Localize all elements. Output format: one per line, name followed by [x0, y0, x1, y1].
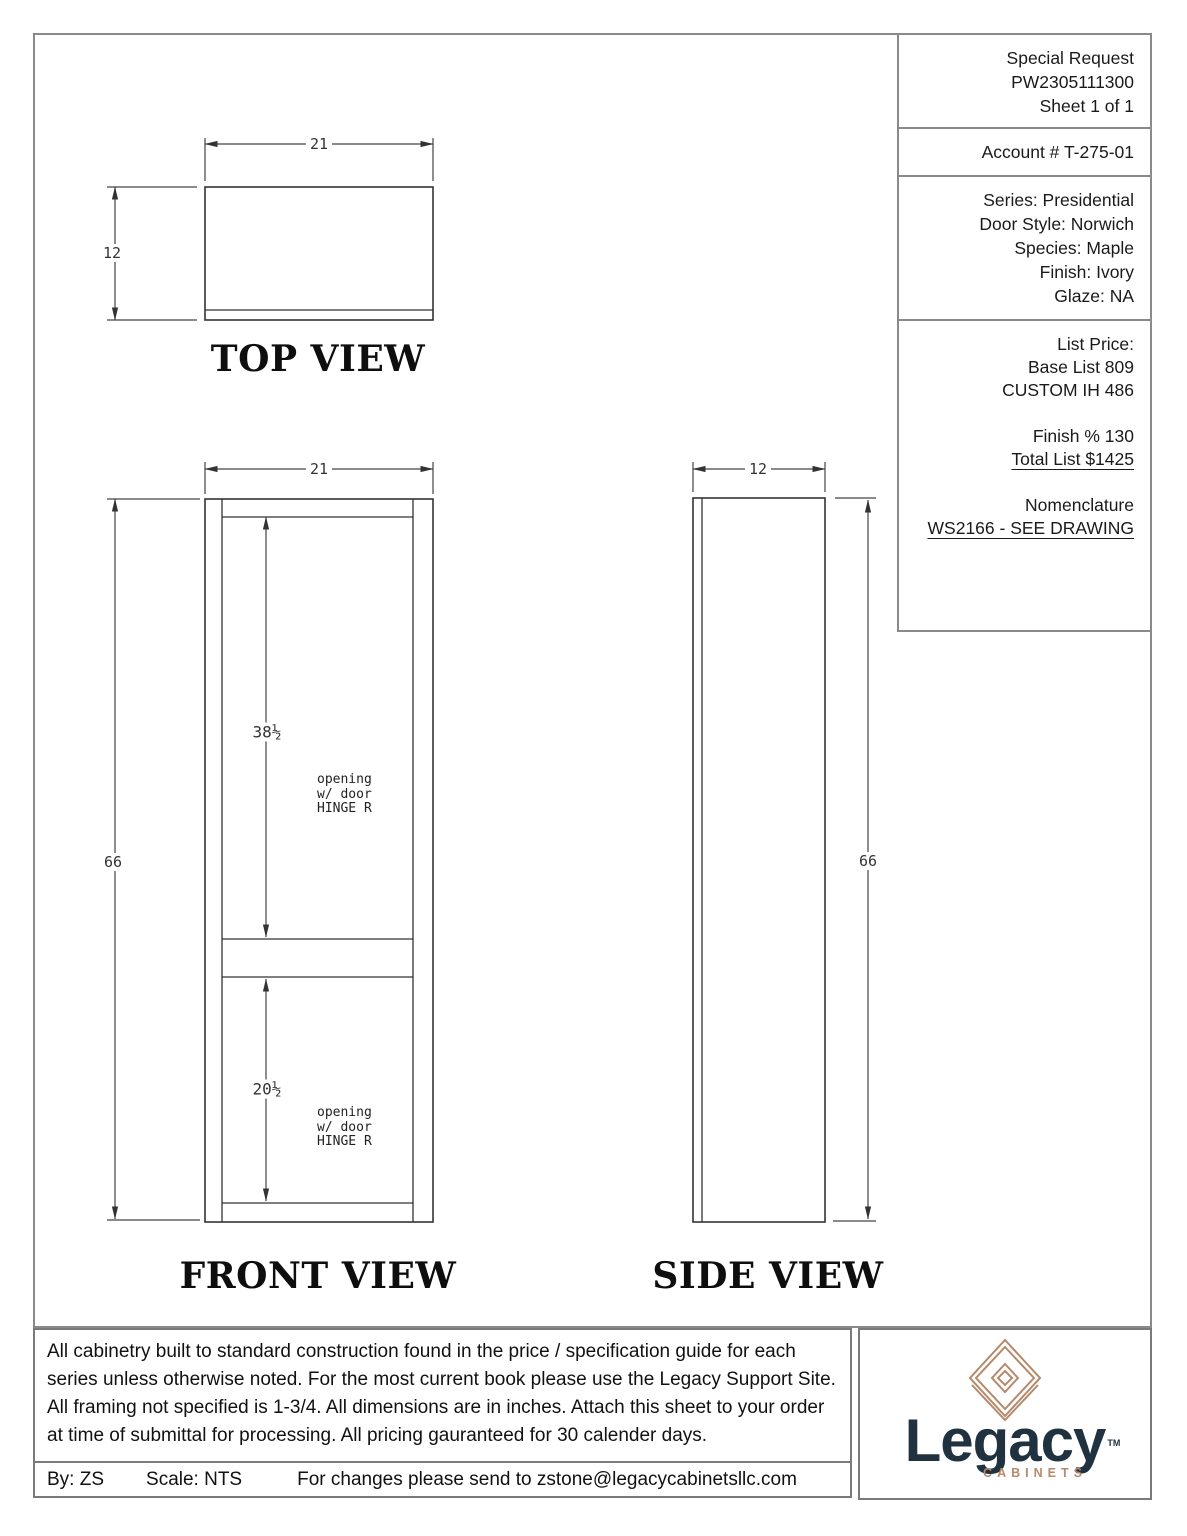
upper-opening-note: opening w/ door HINGE R: [317, 773, 372, 817]
species-value: Species: Maple: [899, 236, 1134, 260]
order-number: PW2305111300: [899, 70, 1134, 94]
upper-opening-note-line3: HINGE R: [317, 802, 372, 817]
legacy-logo-box: LegacyTM CABINETS: [858, 1328, 1152, 1500]
top-view-dimension-lines: [107, 138, 433, 320]
footer-changes-email: For changes please send to zstone@legacy…: [297, 1469, 797, 1491]
dim-label-front-height: 66: [100, 853, 126, 871]
account-number: Account # T-275-01: [982, 142, 1134, 162]
side-view-dimension-lines: [693, 462, 876, 1221]
dim-label-upper-opening: 38½: [249, 723, 286, 742]
base-list-value: Base List 809: [899, 356, 1134, 379]
nomenclature-label: Nomenclature: [899, 494, 1134, 517]
front-view-title: FRONT VIEW: [180, 1255, 457, 1297]
lower-opening-note: opening w/ door HINGE R: [317, 1106, 372, 1150]
sheet-count: Sheet 1 of 1: [899, 94, 1134, 118]
footer-notes-box: All cabinetry built to standard construc…: [33, 1328, 852, 1498]
finish-pct-value: Finish % 130: [899, 425, 1134, 448]
lower-opening-note-line1: opening: [317, 1106, 372, 1121]
top-view-title: TOP VIEW: [211, 338, 425, 380]
dim-label-side-depth: 12: [745, 460, 771, 478]
footer-by: By: ZS: [47, 1469, 104, 1491]
lower-opening-note-line3: HINGE R: [317, 1135, 372, 1150]
total-list-value: Total List $1425: [899, 448, 1134, 471]
series-value: Series: Presidential: [899, 188, 1134, 212]
title-block-request-section: Special Request PW2305111300 Sheet 1 of …: [899, 33, 1152, 129]
side-view-title: SIDE VIEW: [652, 1255, 883, 1297]
footer-scale: Scale: NTS: [146, 1469, 242, 1491]
legacy-tm-mark: TM: [1107, 1419, 1120, 1467]
glaze-value: Glaze: NA: [899, 284, 1134, 308]
lower-opening-note-line2: w/ door: [317, 1121, 372, 1136]
nomenclature-value: WS2166 - SEE DRAWING: [899, 517, 1134, 540]
title-block-spec-section: Series: Presidential Door Style: Norwich…: [899, 177, 1152, 321]
title-block: Special Request PW2305111300 Sheet 1 of …: [897, 33, 1152, 632]
legacy-wordmark-text: Legacy: [905, 1407, 1106, 1474]
custom-ih-value: CUSTOM IH 486: [899, 379, 1134, 402]
dim-label-top-depth: 12: [99, 244, 125, 262]
dim-label-top-width: 21: [306, 135, 332, 153]
list-price-label: List Price:: [899, 333, 1134, 356]
footer-info-bar: By: ZS Scale: NTS For changes please sen…: [35, 1461, 850, 1496]
upper-opening-note-line2: w/ door: [317, 788, 372, 803]
legacy-wordmark: LegacyTM: [905, 1417, 1106, 1465]
front-view-dimension-lines: [107, 462, 433, 1220]
finish-value: Finish: Ivory: [899, 260, 1134, 284]
title-block-account-section: Account # T-275-01: [899, 129, 1152, 177]
door-style-value: Door Style: Norwich: [899, 212, 1134, 236]
dim-label-front-width: 21: [306, 460, 332, 478]
dim-label-lower-opening: 20½: [249, 1080, 286, 1099]
upper-opening-note-line1: opening: [317, 773, 372, 788]
request-type: Special Request: [899, 46, 1134, 70]
top-view-drawing: [205, 187, 433, 320]
side-view-drawing: [693, 498, 825, 1222]
legacy-cabinets-subtext: CABINETS: [983, 1466, 1087, 1480]
dim-label-side-height: 66: [855, 852, 881, 870]
footer-disclaimer: All cabinetry built to standard construc…: [47, 1338, 842, 1450]
title-block-price-section: List Price: Base List 809 CUSTOM IH 486 …: [899, 321, 1152, 632]
